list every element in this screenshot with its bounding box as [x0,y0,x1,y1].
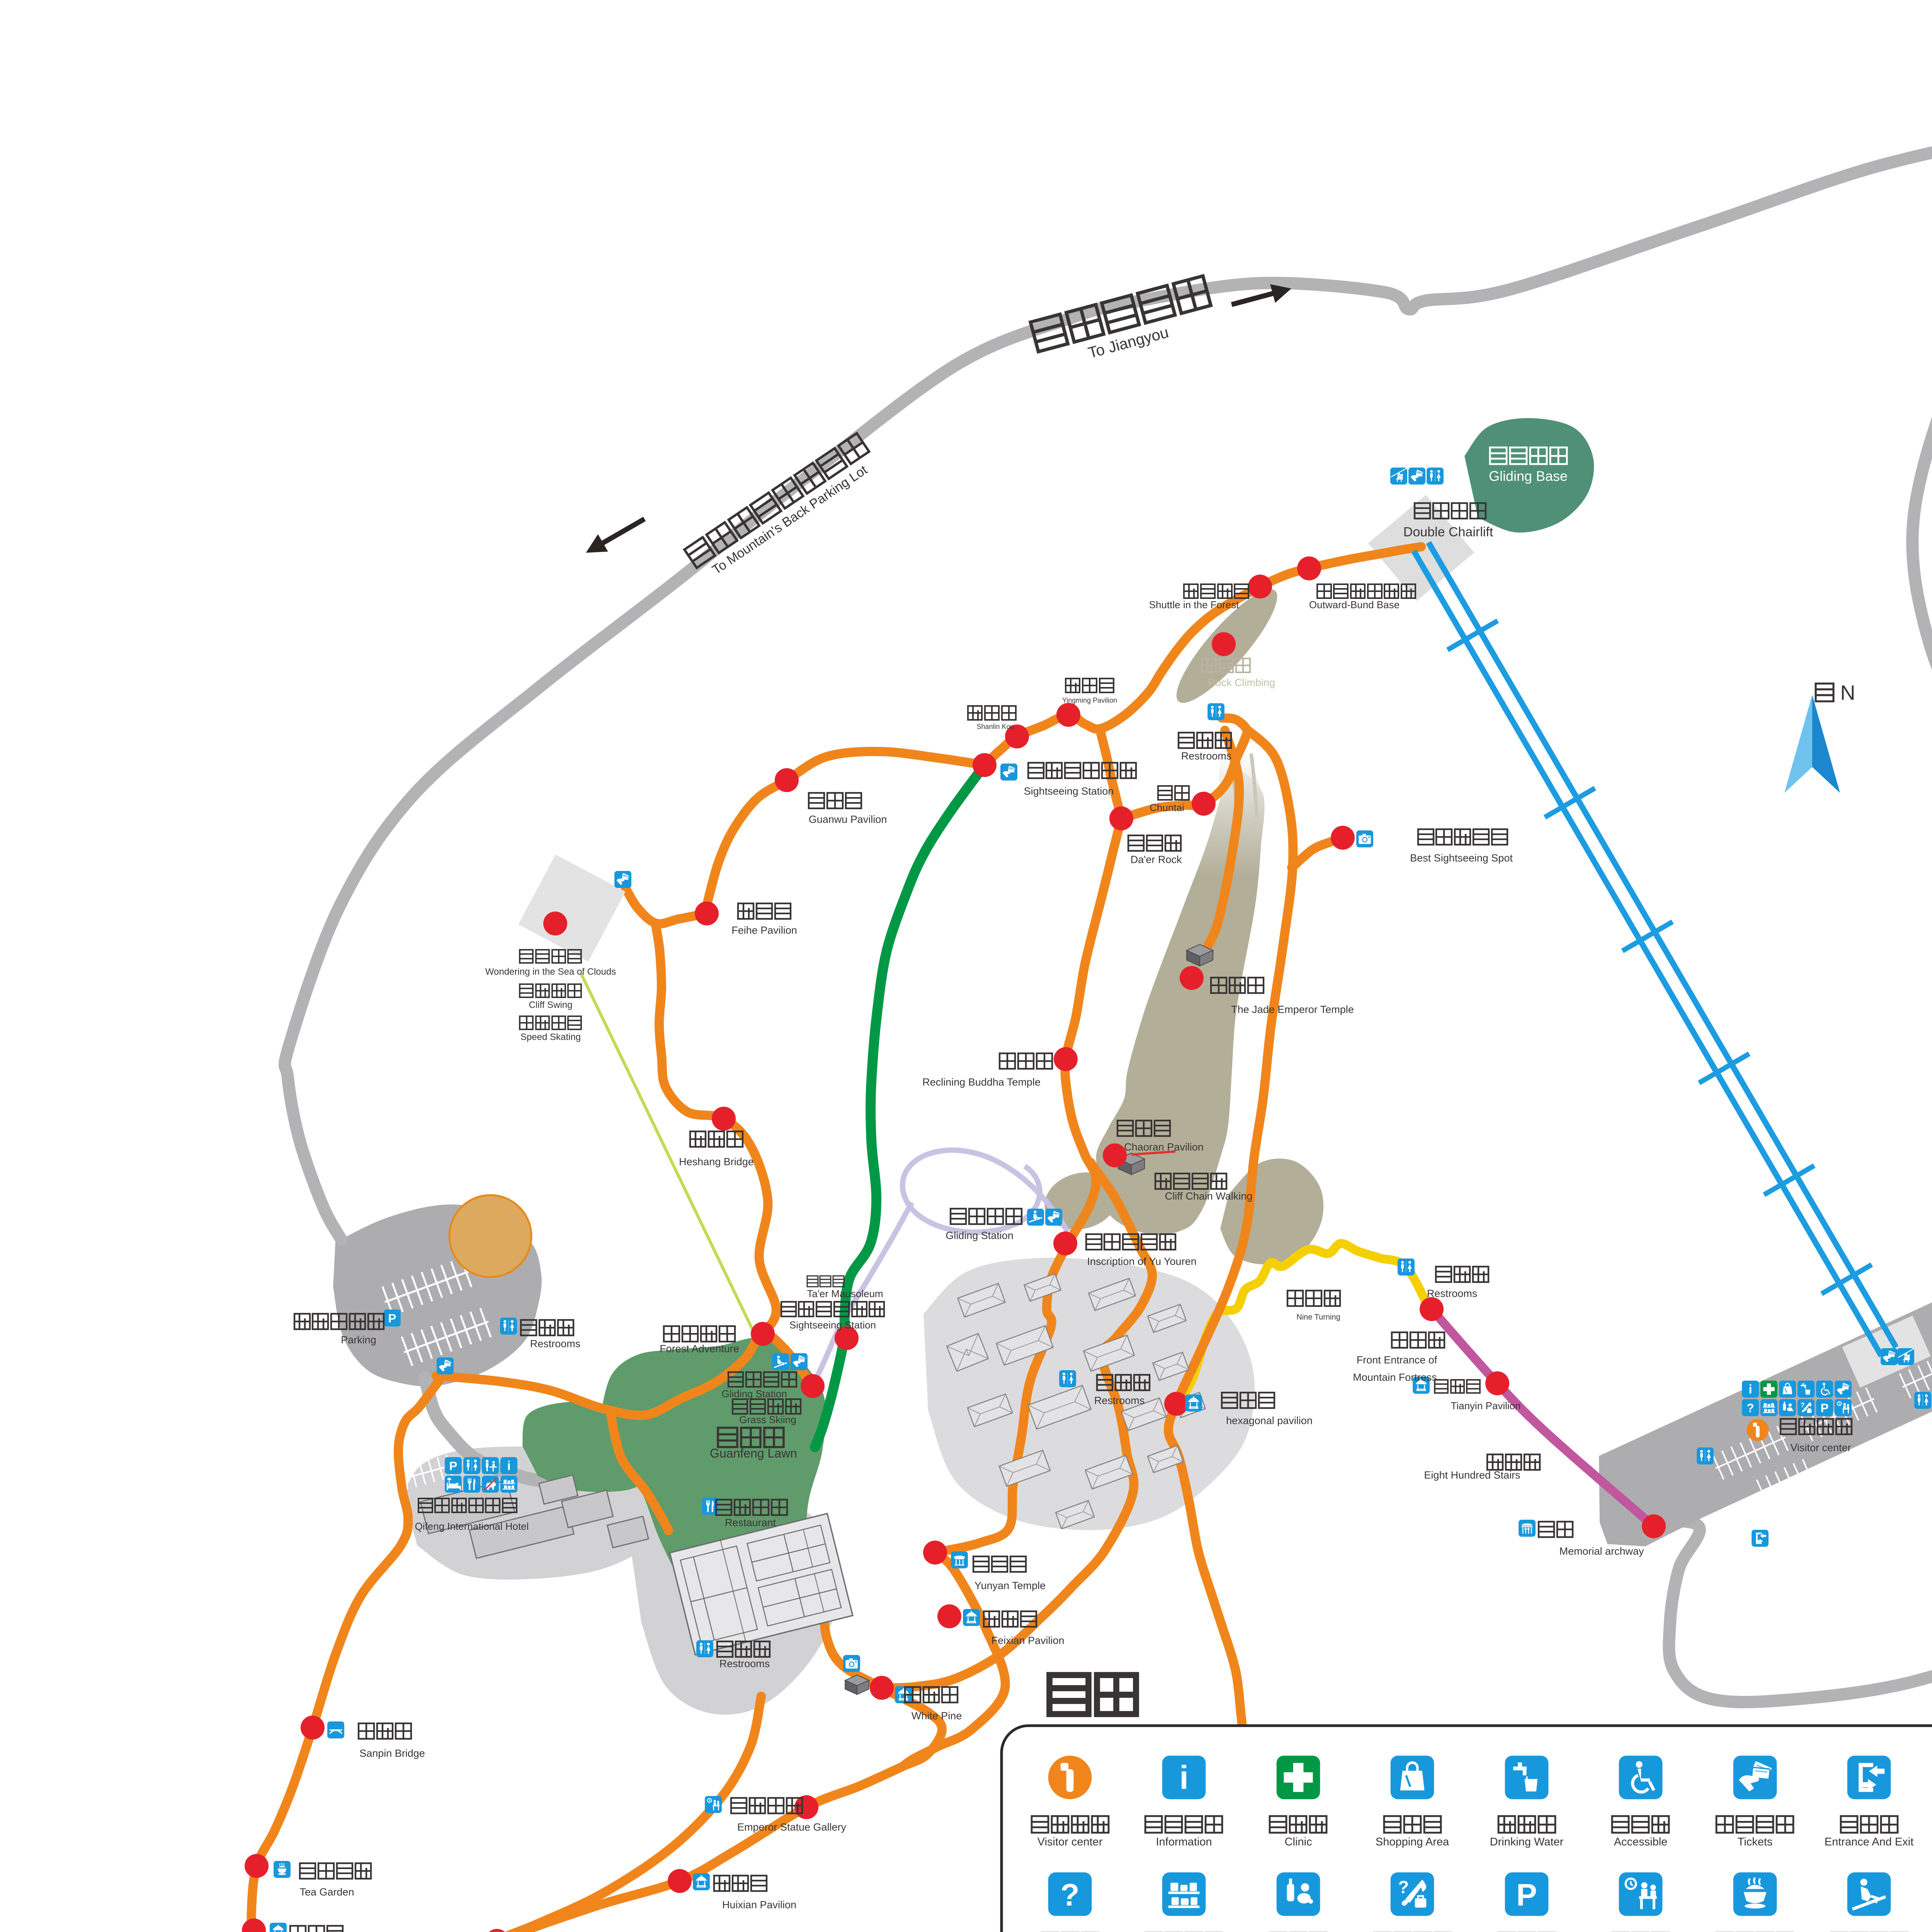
svg-text:Restrooms: Restrooms [530,1338,581,1349]
svg-text:Rock Climbing: Rock Climbing [1208,677,1275,688]
svg-text:Restrooms: Restrooms [1094,1395,1145,1406]
svg-text:Accessible: Accessible [1614,1836,1668,1848]
svg-text:Eight Hundred Stairs: Eight Hundred Stairs [1424,1469,1520,1481]
svg-text:Restaurant: Restaurant [725,1517,776,1528]
svg-text:Visitor center: Visitor center [1790,1442,1851,1453]
svg-text:Restrooms: Restrooms [1427,1287,1478,1299]
svg-text:Nine Turning: Nine Turning [1296,1313,1340,1321]
svg-text:Guanfeng Lawn: Guanfeng Lawn [710,1446,797,1460]
svg-text:White Pine: White Pine [912,1710,962,1721]
svg-text:Tickets: Tickets [1738,1836,1773,1848]
svg-text:Front Entrance of: Front Entrance of [1357,1354,1437,1366]
svg-text:Chaoran Pavilion: Chaoran Pavilion [1124,1141,1204,1153]
svg-text:Sightseeing Station: Sightseeing Station [789,1319,876,1331]
svg-text:Clinic: Clinic [1285,1836,1312,1848]
svg-text:Feihe Pavilion: Feihe Pavilion [731,924,797,936]
svg-text:Yingming Pavilion: Yingming Pavilion [1062,696,1117,704]
svg-text:Restrooms: Restrooms [1181,750,1232,762]
svg-text:Sightseeing Station: Sightseeing Station [1024,785,1114,797]
svg-text:Gliding Station: Gliding Station [721,1388,787,1400]
svg-text:Tea Garden: Tea Garden [299,1886,354,1898]
svg-text:Mountain Fortress: Mountain Fortress [1353,1371,1437,1383]
svg-text:Qifeng International Hotel: Qifeng International Hotel [415,1520,529,1532]
svg-text:N: N [1840,681,1855,704]
svg-text:Speed Skating: Speed Skating [520,1032,581,1042]
svg-text:Double Chairlift: Double Chairlift [1403,525,1493,539]
svg-text:Yunyan Temple: Yunyan Temple [975,1580,1046,1591]
svg-text:Outward-Bund Base: Outward-Bund Base [1309,599,1400,611]
svg-text:Memorial archway: Memorial archway [1559,1545,1644,1557]
svg-text:Cliff Chain Walking: Cliff Chain Walking [1165,1190,1253,1202]
svg-text:Da'er Rock: Da'er Rock [1131,854,1182,865]
svg-text:Guanwu Pavilion: Guanwu Pavilion [809,813,887,825]
svg-text:Huixian Pavilion: Huixian Pavilion [722,1899,796,1910]
svg-text:Emperor Statue Gallery: Emperor Statue Gallery [737,1821,847,1833]
svg-text:Reclining Buddha Temple: Reclining Buddha Temple [922,1076,1041,1088]
svg-text:Feixian Pavilion: Feixian Pavilion [991,1634,1064,1646]
svg-text:Shanlin Kou: Shanlin Kou [976,723,1014,730]
svg-text:Forest Adventure: Forest Adventure [660,1343,739,1354]
svg-text:Entrance And Exit: Entrance And Exit [1825,1836,1914,1848]
svg-text:Cliff Swing: Cliff Swing [529,1000,573,1010]
svg-text:Tianyin Pavilion: Tianyin Pavilion [1451,1400,1520,1412]
svg-text:The Jade Emperor Temple: The Jade Emperor Temple [1231,1003,1354,1015]
svg-text:Drinking Water: Drinking Water [1490,1836,1564,1848]
svg-text:Ta'er Mausoleum: Ta'er Mausoleum [807,1288,883,1299]
svg-text:Chuntai: Chuntai [1150,802,1184,813]
svg-text:Parking: Parking [341,1334,376,1345]
svg-text:Wondering in the Sea of Clouds: Wondering in the Sea of Clouds [485,966,616,977]
svg-text:Gliding Station: Gliding Station [946,1230,1014,1241]
svg-text:hexagonal pavilion: hexagonal pavilion [1226,1415,1313,1426]
svg-text:Visitor center: Visitor center [1037,1836,1103,1848]
svg-text:Shuttle in the Forest: Shuttle in the Forest [1149,599,1239,611]
svg-text:Best Sightseeing Spot: Best Sightseeing Spot [1410,852,1513,864]
svg-text:Inscription of Yu Youren: Inscription of Yu Youren [1087,1255,1196,1267]
svg-text:Restrooms: Restrooms [719,1658,770,1669]
svg-text:Sanpin Bridge: Sanpin Bridge [359,1747,425,1759]
svg-text:Information: Information [1156,1836,1212,1848]
svg-text:Heshang Bridge: Heshang Bridge [679,1156,754,1167]
svg-text:Grass Skiing: Grass Skiing [739,1414,796,1425]
svg-text:Gliding Base: Gliding Base [1489,468,1568,484]
svg-text:Shopping Area: Shopping Area [1376,1836,1449,1848]
